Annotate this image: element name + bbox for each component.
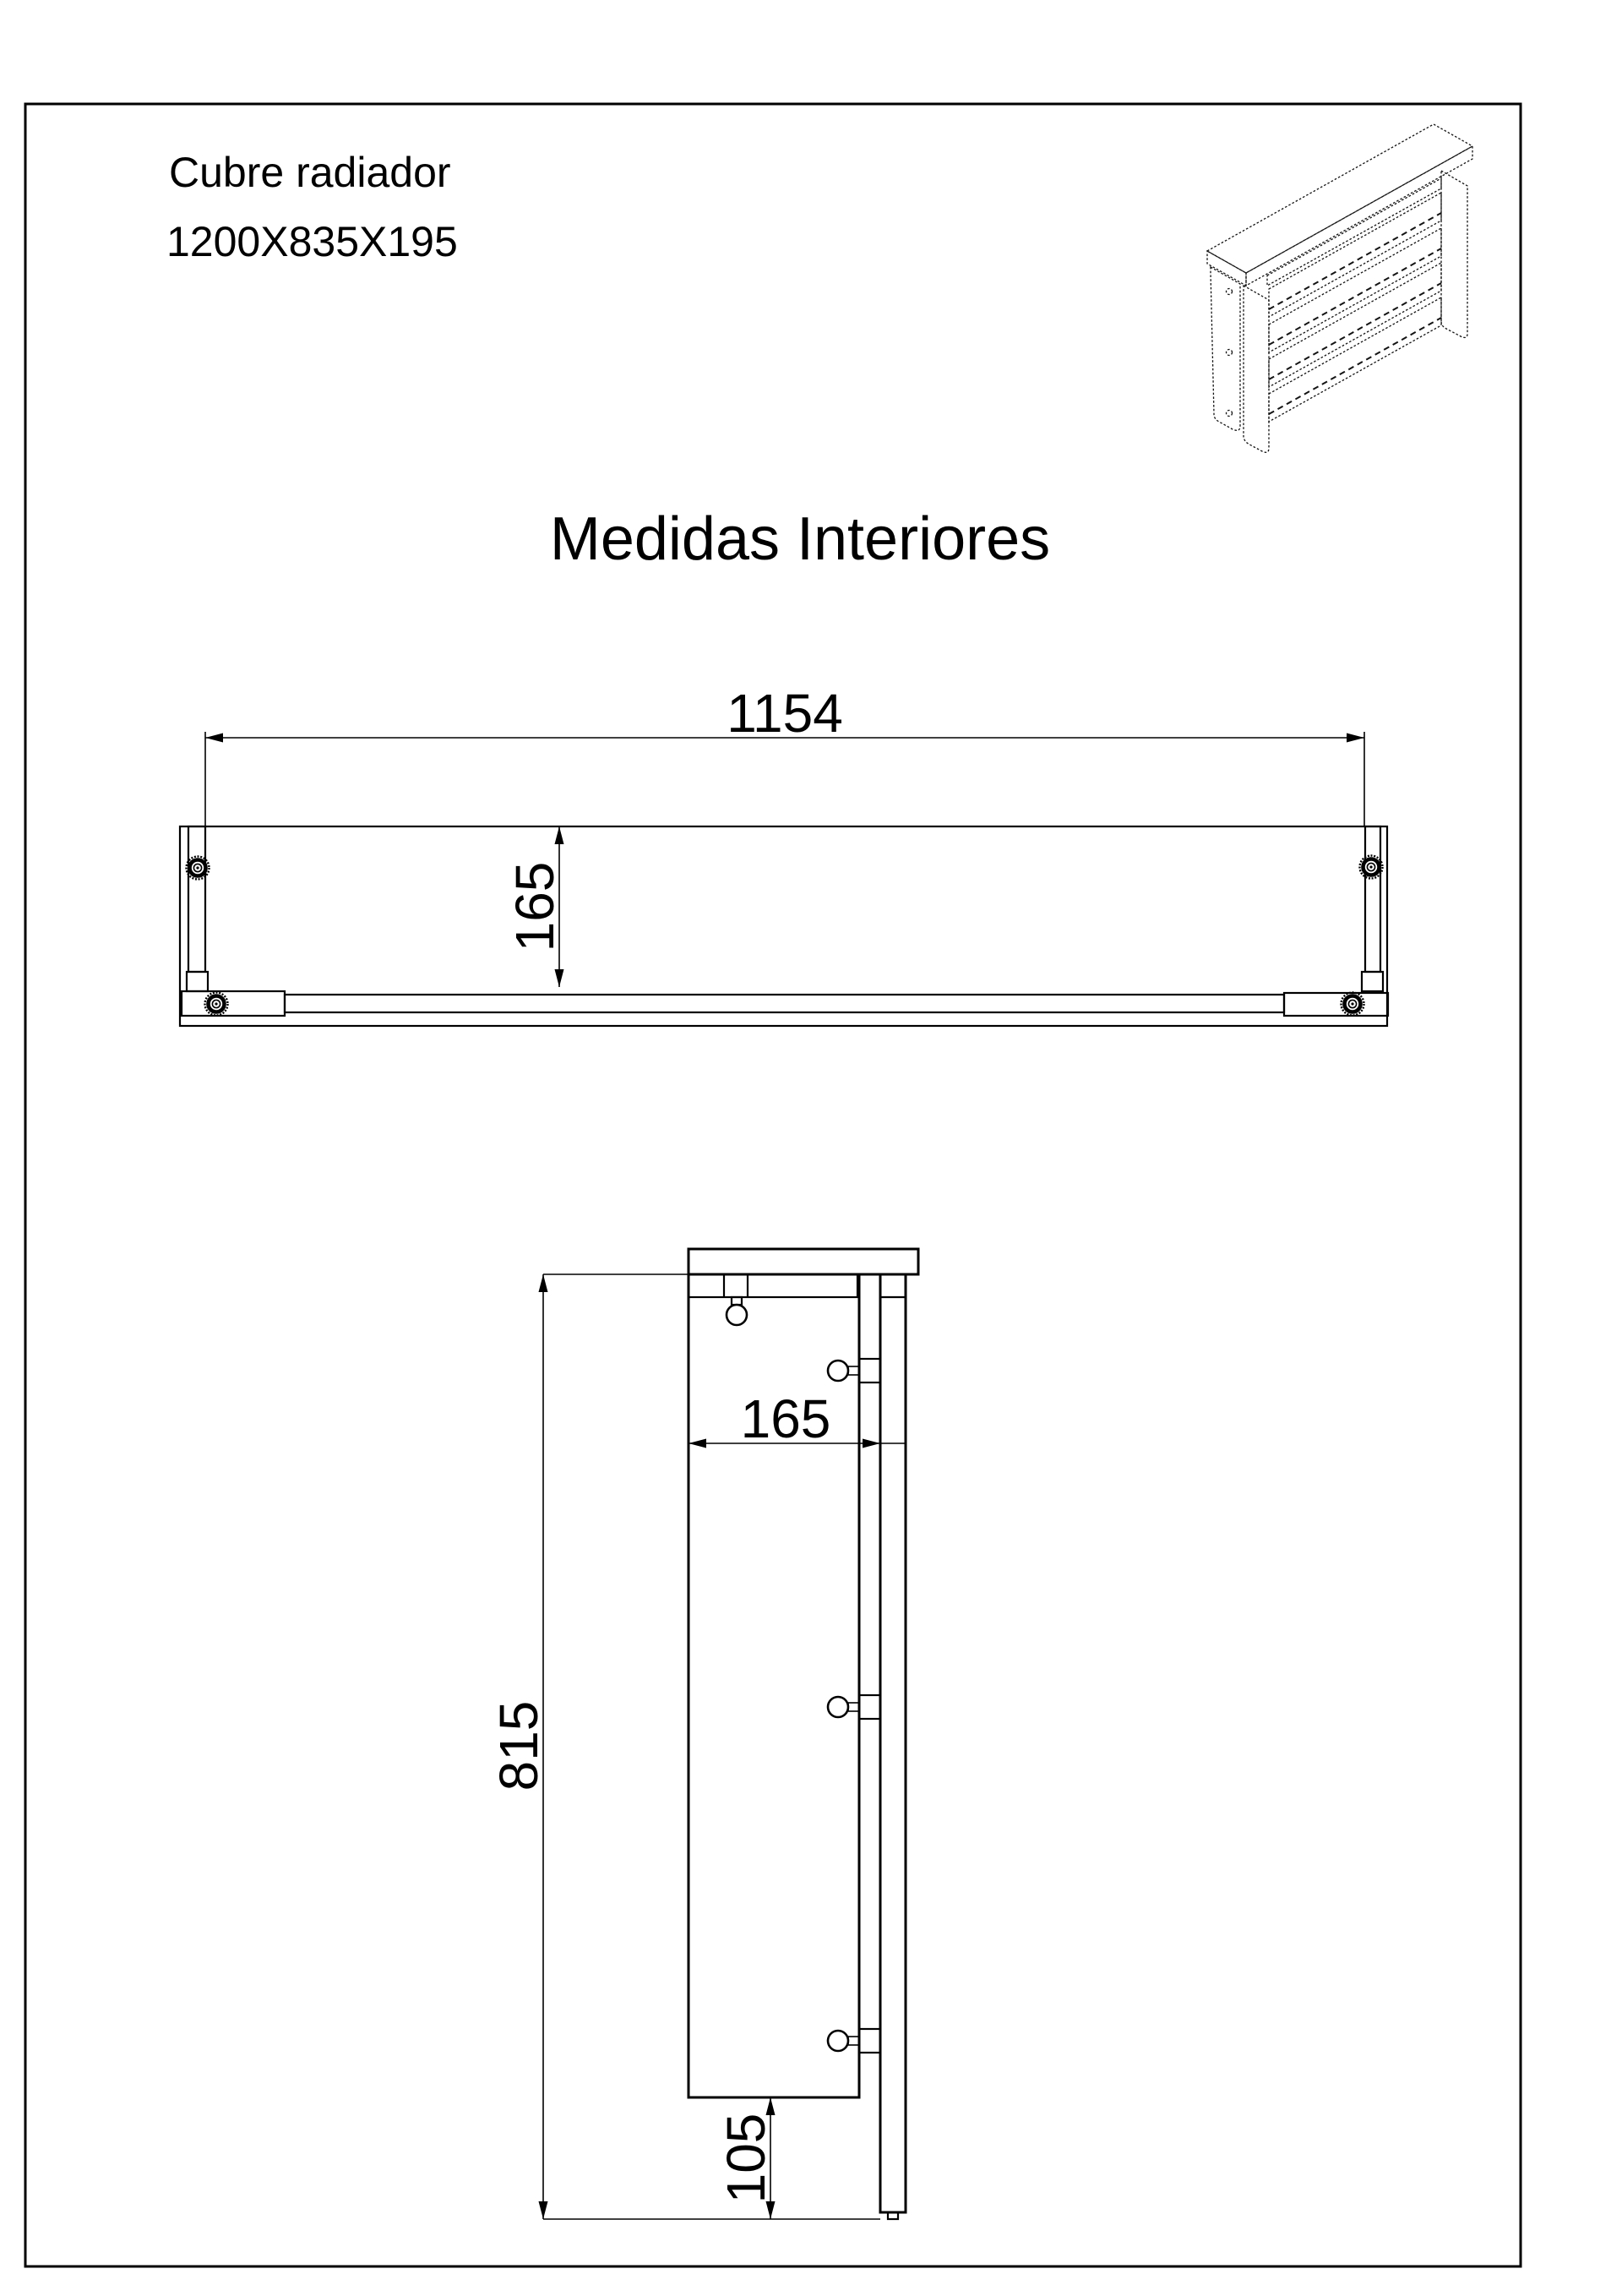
bolt-neck <box>848 1366 859 1375</box>
iso-left-leg <box>1244 286 1269 452</box>
bolt-neck <box>732 1297 742 1305</box>
arrowhead-icon <box>863 1439 880 1448</box>
iso-slat-shade-line <box>1269 248 1441 345</box>
side-view-bolt-assembly <box>828 2029 880 2053</box>
iso-slat <box>1269 228 1441 352</box>
side-view-bolt-assembly <box>828 1695 880 1719</box>
arrowhead-icon <box>539 1274 548 1292</box>
top-view-right-corner-block <box>1284 993 1388 1016</box>
top-view: 1154 165 <box>180 683 1388 1026</box>
product-size: 1200X835X195 <box>166 218 458 265</box>
side-view-bolt-assembly <box>828 1359 880 1383</box>
arrowhead-icon <box>766 2097 776 2115</box>
iso-bolt-dot <box>1227 289 1233 295</box>
bolt-icon <box>205 993 228 1016</box>
iso-bolt-dot <box>1227 411 1233 417</box>
bolt-block <box>859 1695 880 1719</box>
product-name: Cubre radiador <box>169 149 451 196</box>
top-view-board-outline <box>180 826 1387 1026</box>
iso-slat-shade-line <box>1269 213 1441 309</box>
dim-top-depth: 165 <box>504 826 565 987</box>
header: Cubre radiador 1200X835X195 <box>166 149 458 265</box>
arrowhead-icon <box>205 734 223 743</box>
bolt-neck <box>848 1703 859 1711</box>
dim-side-height-label: 815 <box>488 1701 549 1792</box>
iso-left-panel <box>1211 267 1240 430</box>
bolt-block <box>859 2029 880 2053</box>
dim-side-bottom-gap-label: 105 <box>716 2113 776 2204</box>
side-view-top-rail <box>689 1274 857 1297</box>
top-view-left-panel-foot <box>187 972 208 991</box>
dim-top-depth-label: 165 <box>504 862 565 952</box>
bolt-neck <box>848 2037 859 2045</box>
side-view-front-leg <box>880 1274 906 2212</box>
dim-side-height: 815 <box>488 1274 689 2219</box>
side-view: 815 165 105 <box>488 1249 918 2219</box>
drawing-sheet: Cubre radiador 1200X835X195 Medidas Inte… <box>0 0 1622 2296</box>
iso-top-board-end-face <box>1207 251 1246 286</box>
dim-side-depth: 165 <box>689 1388 906 1449</box>
sheet-border <box>25 104 1521 2266</box>
bolt-icon <box>828 1697 848 1717</box>
bolt-icon <box>727 1305 747 1325</box>
arrowhead-icon <box>539 2201 548 2219</box>
iso-top-board-top-face <box>1207 124 1472 273</box>
iso-top-board-front-face <box>1246 146 1472 286</box>
bolt-icon <box>828 1361 848 1381</box>
isometric-view <box>1207 124 1472 452</box>
arrowhead-icon <box>1347 734 1364 743</box>
dim-side-depth-label: 165 <box>741 1388 831 1449</box>
top-view-front-slat <box>285 995 1284 1012</box>
technical-drawing-svg: Cubre radiador 1200X835X195 Medidas Inte… <box>0 0 1622 2296</box>
iso-bolt-dot <box>1227 350 1233 356</box>
iso-slat-shade-line <box>1269 283 1441 379</box>
arrowhead-icon <box>555 969 564 987</box>
arrowhead-icon <box>555 826 564 844</box>
bolt-icon <box>828 2031 848 2051</box>
top-view-right-panel-foot <box>1362 972 1383 991</box>
side-view-top-board <box>689 1249 918 1274</box>
bolt-icon <box>1342 993 1364 1016</box>
arrowhead-icon <box>689 1439 706 1448</box>
bolt-block <box>859 1359 880 1383</box>
top-view-right-panel <box>1365 826 1380 972</box>
iso-slat-shade-line <box>1269 318 1441 414</box>
drawing-title: Medidas Interiores <box>550 505 1050 573</box>
iso-slat <box>1269 263 1441 387</box>
bolt-icon <box>1360 856 1383 879</box>
iso-slat <box>1269 297 1441 422</box>
dim-top-width: 1154 <box>205 683 1364 826</box>
dim-side-bottom-gap: 105 <box>716 2097 776 2219</box>
dim-top-width-label: 1154 <box>727 683 843 744</box>
top-view-left-corner-block <box>182 991 285 1016</box>
iso-right-leg <box>1441 171 1467 337</box>
top-view-left-panel <box>188 826 205 972</box>
